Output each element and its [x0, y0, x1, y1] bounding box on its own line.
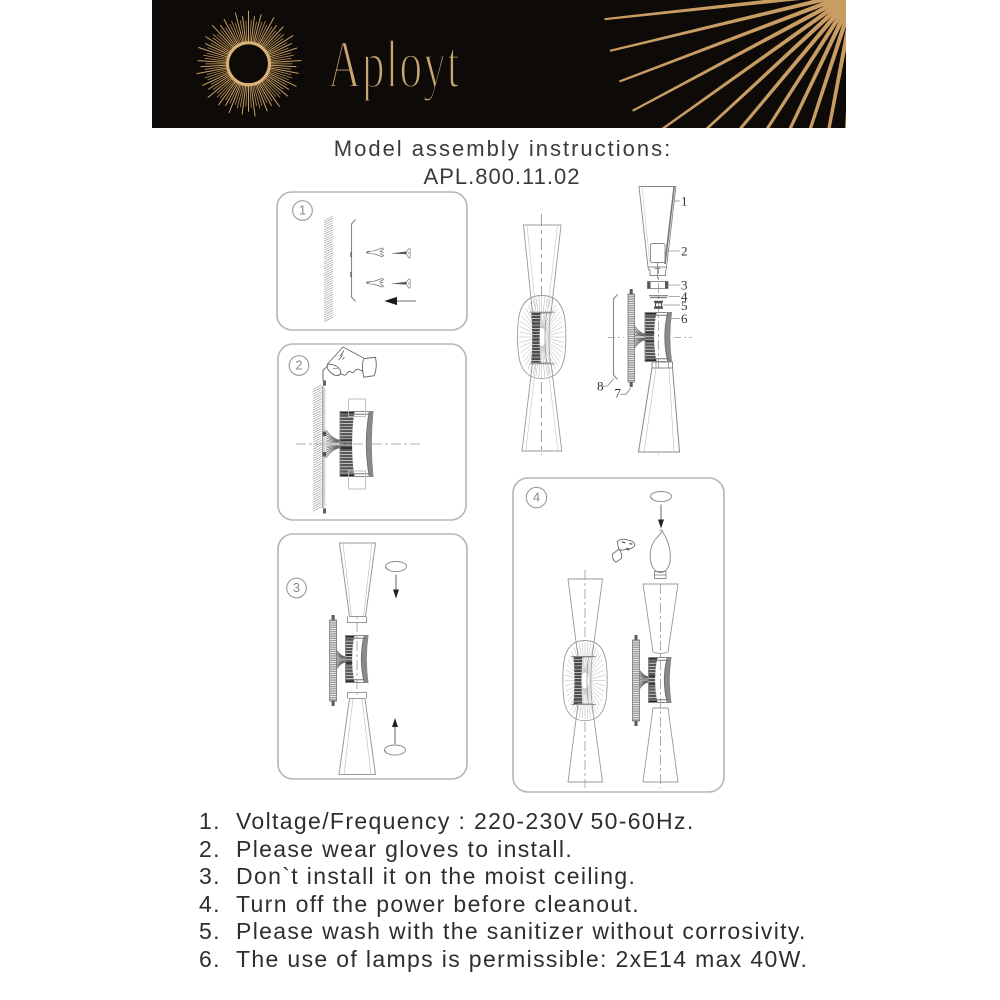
svg-text:4: 4: [533, 490, 540, 505]
svg-text:2: 2: [681, 244, 688, 259]
svg-text:1: 1: [299, 203, 306, 218]
svg-text:6: 6: [681, 311, 688, 326]
svg-text:2: 2: [295, 358, 302, 373]
svg-text:1: 1: [681, 194, 688, 209]
svg-text:7: 7: [615, 386, 622, 401]
svg-text:8: 8: [597, 379, 604, 394]
svg-text:3: 3: [293, 580, 300, 595]
